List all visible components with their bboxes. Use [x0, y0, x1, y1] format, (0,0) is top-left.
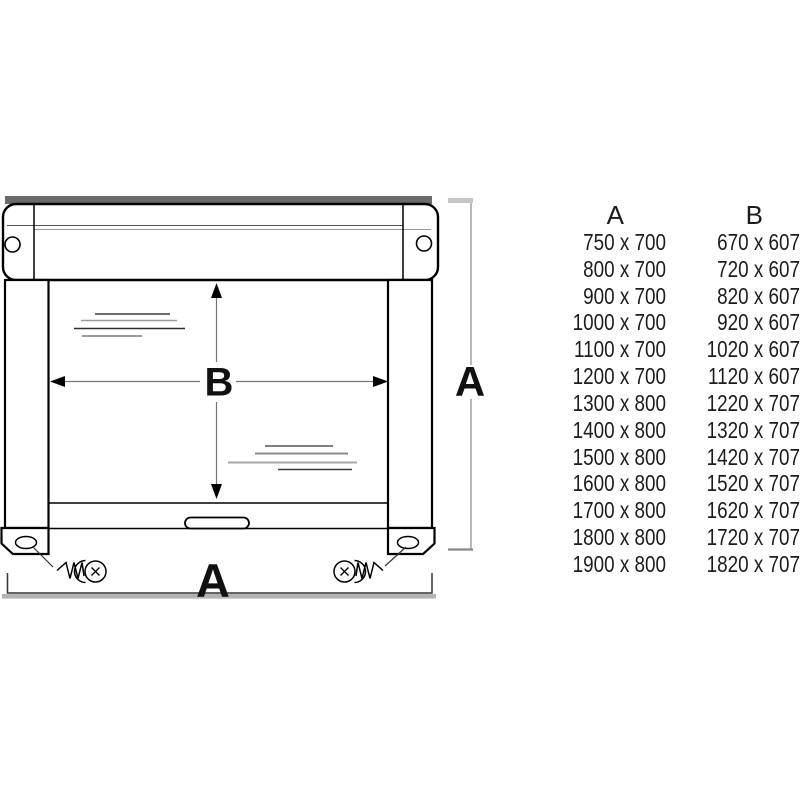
- size-cell-a: 900 x 700: [563, 283, 666, 310]
- size-cell-b: 1220 x 707: [690, 390, 800, 417]
- outer-width-label: A: [196, 554, 230, 607]
- column-header-b: B: [666, 202, 800, 229]
- size-cell-b: 920 x 607: [690, 309, 800, 336]
- product-dimension-diagram: B A A: [0, 0, 500, 620]
- size-table: A B 750 x 700 670 x 607 800 x 700 720 x …: [540, 202, 800, 578]
- handle: [185, 518, 249, 529]
- size-cell-a: 1700 x 800: [563, 497, 666, 524]
- size-cell-b: 1620 x 707: [690, 497, 800, 524]
- size-row: 1300 x 800 1220 x 707: [540, 390, 800, 417]
- size-cell-b: 1120 x 607: [690, 363, 800, 390]
- size-cell-a: 1900 x 800: [563, 551, 666, 578]
- mounting-hole-icon: [398, 537, 419, 549]
- size-row: 1700 x 800 1620 x 707: [540, 497, 800, 524]
- size-cell-b: 1720 x 707: [690, 524, 800, 551]
- size-row: 1500 x 800 1420 x 707: [540, 444, 800, 471]
- size-cell-b: 1020 x 607: [690, 336, 800, 363]
- size-row: 800 x 700 720 x 607: [540, 256, 800, 283]
- inner-width-label: B: [205, 361, 234, 405]
- size-row: 1200 x 700 1120 x 607: [540, 363, 800, 390]
- size-row: 750 x 700 670 x 607: [540, 229, 800, 256]
- size-row: 1400 x 800 1320 x 707: [540, 417, 800, 444]
- outer-height-label: A: [455, 358, 485, 405]
- arrow-down-icon: [211, 484, 222, 499]
- size-cell-a: 750 x 700: [563, 229, 666, 256]
- arrow-right-icon: [373, 376, 388, 387]
- size-cell-b: 1820 x 707: [690, 551, 800, 578]
- glass-reflection-lines-top: [74, 314, 185, 336]
- size-table-header: A B: [540, 202, 800, 229]
- size-cell-b: 1320 x 707: [690, 417, 800, 444]
- size-cell-a: 1500 x 800: [563, 444, 666, 471]
- arrow-left-icon: [50, 376, 65, 387]
- glass-reflection-lines-bottom: [228, 446, 357, 470]
- size-cell-a: 1300 x 800: [563, 390, 666, 417]
- size-cell-a: 1400 x 800: [563, 417, 666, 444]
- size-cell-b: 670 x 607: [690, 229, 800, 256]
- size-row: 1100 x 700 1020 x 607: [540, 336, 800, 363]
- size-cell-a: 1000 x 700: [563, 309, 666, 336]
- screw-hole-icon: [5, 237, 20, 252]
- size-cell-a: 1200 x 700: [563, 363, 666, 390]
- size-cell-a: 1600 x 800: [563, 470, 666, 497]
- column-header-a: A: [540, 202, 666, 229]
- size-cell-b: 1420 x 707: [690, 444, 800, 471]
- right-frame-leg: [388, 280, 432, 528]
- headrail: [3, 204, 438, 280]
- size-cell-a: 1100 x 700: [563, 336, 666, 363]
- arrow-up-icon: [211, 283, 222, 298]
- size-row: 1600 x 800 1520 x 707: [540, 470, 800, 497]
- screw-hole-icon: [417, 236, 432, 251]
- size-cell-b: 720 x 607: [690, 256, 800, 283]
- size-cell-b: 1520 x 707: [690, 470, 800, 497]
- left-frame-leg: [5, 280, 49, 528]
- size-cell-b: 820 x 607: [690, 283, 800, 310]
- size-cell-a: 800 x 700: [563, 256, 666, 283]
- size-row: 900 x 700 820 x 607: [540, 283, 800, 310]
- size-row: 1000 x 700 920 x 607: [540, 309, 800, 336]
- size-row: 1800 x 800 1720 x 707: [540, 524, 800, 551]
- size-cell-a: 1800 x 800: [563, 524, 666, 551]
- size-row: 1900 x 800 1820 x 707: [540, 551, 800, 578]
